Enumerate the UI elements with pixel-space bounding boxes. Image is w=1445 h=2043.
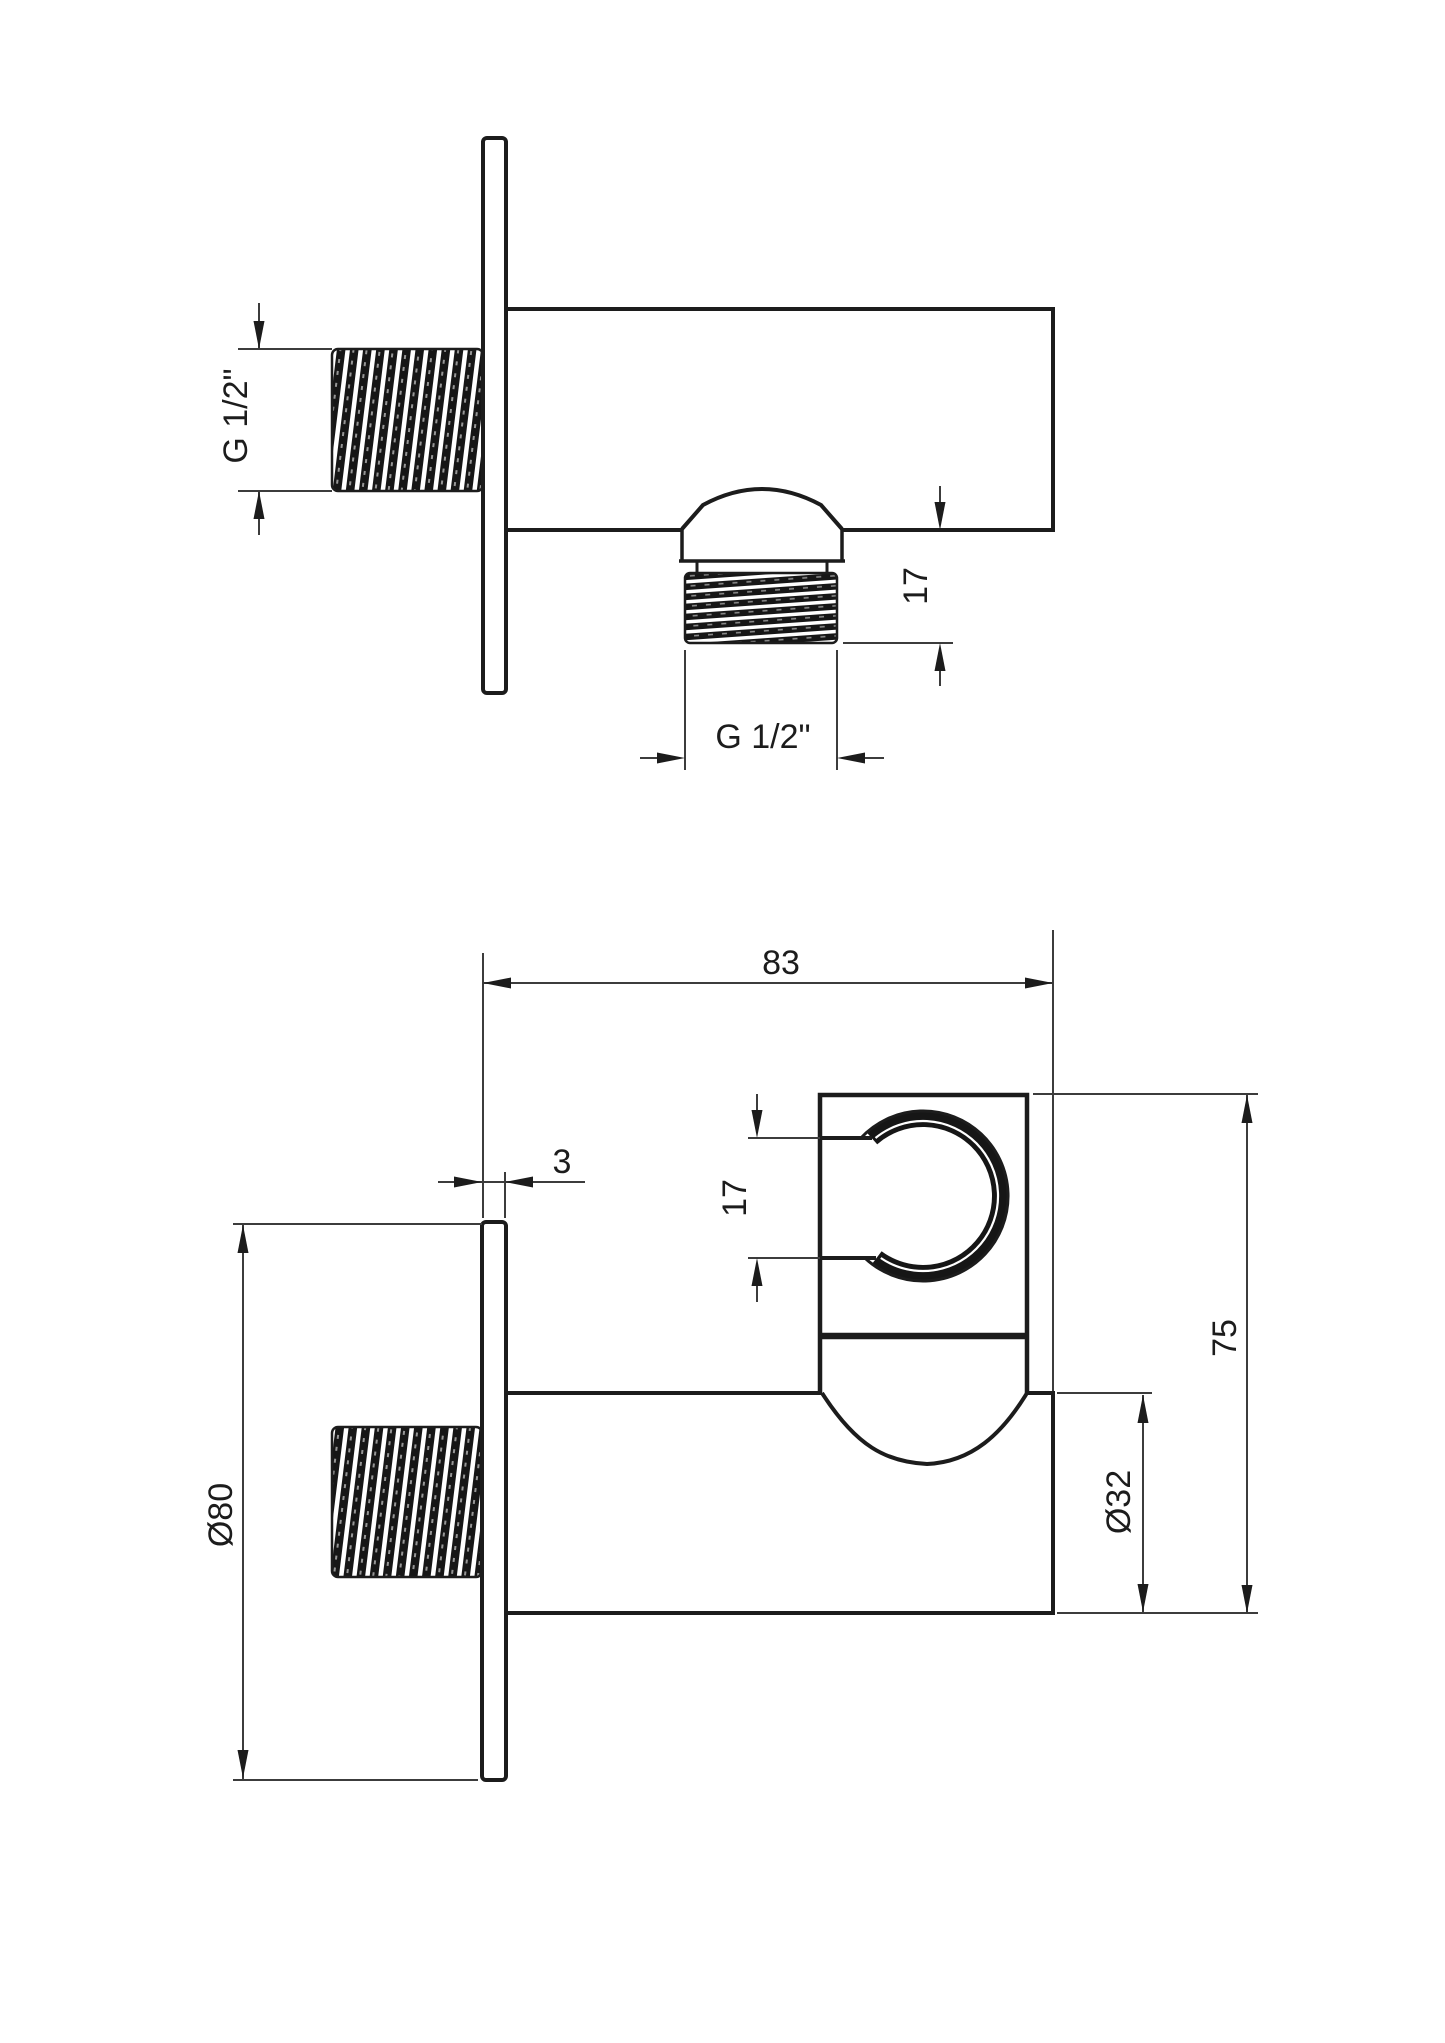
outlet-cap-fill	[684, 531, 840, 561]
drawing-sheet: G 1/2" G 1/2" 17	[0, 0, 1445, 2043]
outlet-thread-label: G 1/2"	[715, 718, 810, 756]
holder-slot-label: 17	[716, 1179, 754, 1217]
body-diameter-label: Ø32	[1100, 1470, 1138, 1534]
depth-label: 83	[762, 944, 800, 982]
wall-thread-pipe-front	[332, 1427, 482, 1577]
wall-plate-side	[483, 138, 506, 693]
wall-plate-front	[482, 1222, 506, 1780]
technical-drawing: G 1/2" G 1/2" 17	[0, 0, 1445, 2043]
wall-thread-pipe-side	[332, 349, 483, 491]
outlet-thread	[685, 573, 837, 643]
outlet-offset-label: 17	[897, 567, 935, 605]
wall-thread-label: G 1/2"	[217, 368, 255, 463]
total-height-label: 75	[1206, 1319, 1244, 1357]
plate-diameter-label: Ø80	[202, 1483, 240, 1547]
sheet-background	[0, 0, 1445, 2043]
plate-thickness-label: 3	[553, 1143, 572, 1181]
